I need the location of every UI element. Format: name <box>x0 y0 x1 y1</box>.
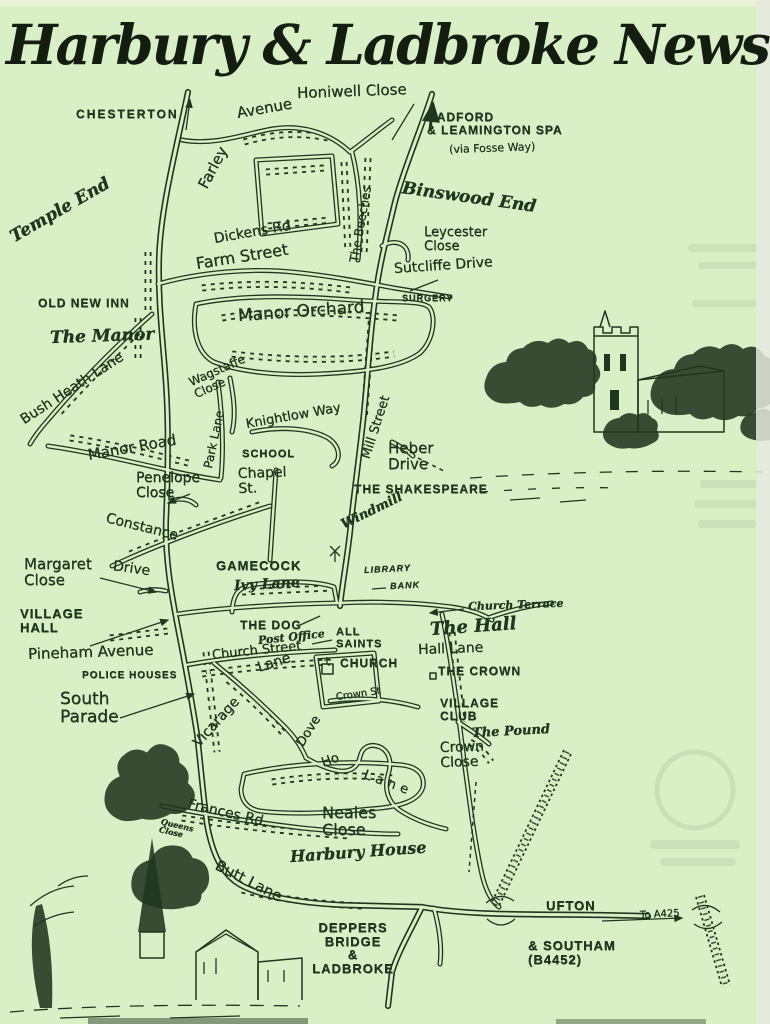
label-honiwell-close: Honiwell Close <box>297 82 407 102</box>
label-old-new-inn: OLD NEW INN <box>38 297 130 310</box>
label-avenue: Avenue <box>236 96 294 121</box>
newsletter-cover: Harbury & Ladbroke News CHESTERTONHoniwe… <box>0 0 770 1024</box>
label-vicarage: Vicarage <box>191 695 243 750</box>
label-bank: BANK <box>390 580 420 591</box>
label-southam-b4452: & SOUTHAM (B4452) <box>528 939 616 966</box>
label-south-parade: South Parade <box>60 691 119 727</box>
label-the-crown: THE CROWN <box>438 665 521 678</box>
label-dovehouse-ho: Ho <box>320 751 341 770</box>
label-ivy-lane: Ivy Lane <box>234 576 300 594</box>
label-gamecock: GAMECOCK <box>216 559 301 573</box>
label-farley: Farley <box>196 145 231 192</box>
label-butt-lane: Butt Lane <box>212 858 284 905</box>
label-chesterton: CHESTERTON <box>76 108 178 121</box>
label-park-lane: Park Lane <box>202 409 227 469</box>
label-police-houses: POLICE HOUSES <box>82 671 177 682</box>
label-margaret-close: Margaret Close <box>24 557 92 589</box>
label-deppers-bridge-ladbroke: DEPPERS BRIDGE & LADBROKE <box>278 921 428 976</box>
label-manor-orchard: Manor Orchard <box>237 299 365 326</box>
label-neales-close: Neales Close <box>322 805 376 839</box>
label-radford-leamington: RADFORD & LEAMINGTON SPA <box>427 111 563 136</box>
label-wagstaffe-close: Wagstaffe Close <box>187 353 252 400</box>
label-via-fosse-way: (via Fosse Way) <box>449 141 536 156</box>
label-constance: Constance <box>104 511 179 543</box>
label-ufton: UFTON <box>546 899 596 913</box>
label-village-hall: VILLAGE HALL <box>20 607 83 634</box>
label-manor-road: Manor Road <box>87 433 178 464</box>
label-frances-rd: Frances Rd. <box>186 797 269 830</box>
label-the-manor: The Manor <box>50 326 155 347</box>
label-chapel-st: Chapel St. <box>237 465 287 496</box>
label-the-beeches: The Beeches <box>348 185 374 263</box>
label-temple-end: Temple End <box>8 175 114 246</box>
label-pineham-avenue: Pineham Avenue <box>28 643 154 663</box>
label-surgery: SURGERY <box>402 294 453 303</box>
label-windmill: Windmill <box>339 491 405 532</box>
label-dovehouse-dove: Dove <box>294 714 323 750</box>
label-heber-drive: Heber Drive <box>388 441 433 473</box>
label-church-terrace: Church Terrace <box>468 598 564 613</box>
label-bush-heath-lane: Bush Heath Lane <box>18 350 126 427</box>
label-harbury-house: Harbury House <box>289 839 426 865</box>
label-farm-street: Farm Street <box>195 242 290 273</box>
label-church: CHURCH <box>340 657 398 670</box>
map-labels-layer: CHESTERTONHoniwell CloseFarleyAvenueRADF… <box>0 0 770 1024</box>
label-dovehouse-lane: Lane <box>362 768 415 798</box>
label-the-hall: The Hall <box>429 615 517 640</box>
label-the-shakespeare: THE SHAKESPEARE <box>354 483 488 496</box>
label-binswood-end: Binswood End <box>401 180 537 216</box>
label-crown-st: Crown St <box>335 687 381 704</box>
label-school: SCHOOL <box>242 449 295 461</box>
label-knightlow-way: Knightlow Way <box>245 401 342 431</box>
label-library: LIBRARY <box>364 564 411 576</box>
label-queens-close: Queens Close <box>158 817 194 841</box>
label-leycester-close: Leycester Close <box>424 226 487 253</box>
label-all-saints: ALL SAINTS <box>336 627 382 650</box>
label-crown-close: Crown Close <box>439 739 484 770</box>
label-penelope-close: Penelope Close <box>136 471 200 500</box>
label-to-a425: To A425 <box>640 909 680 922</box>
label-hall-lane: Hall Lane <box>418 641 484 658</box>
label-village-club: VILLAGE CLUB <box>440 697 499 722</box>
label-constance-drive: Drive <box>112 559 151 579</box>
label-sutcliffe-drive: Sutcliffe Drive <box>393 255 493 277</box>
